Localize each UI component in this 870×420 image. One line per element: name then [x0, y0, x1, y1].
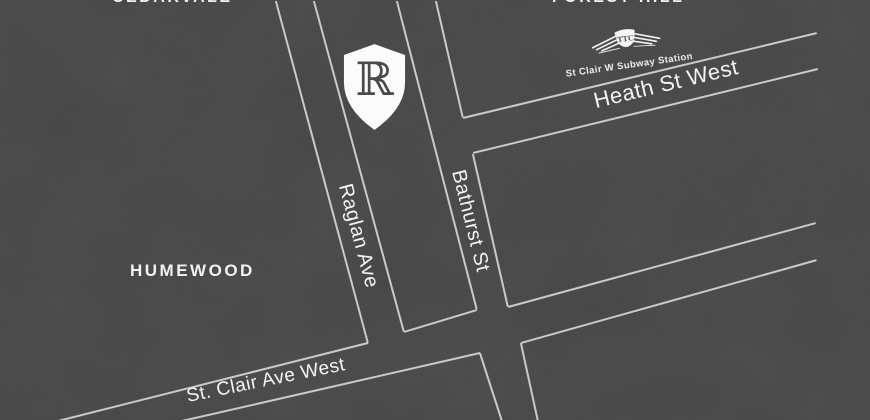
st-clair-north-line-east	[508, 222, 816, 308]
bathurst-st-west-line	[396, 1, 478, 310]
marker-letter: ℝ	[341, 54, 408, 105]
st-clair-south-line-east	[521, 259, 817, 344]
property-marker: ℝ	[341, 43, 408, 132]
bathurst-st-east-line-north	[435, 1, 464, 118]
background-texture	[0, 0, 870, 420]
bathurst-st-west-line-south	[479, 353, 503, 420]
neighborhood-label-cedarvale: CEDARVALE	[112, 0, 233, 7]
neighborhood-label-humewood: HUMEWOOD	[130, 261, 255, 281]
map-canvas: CEDARVALE FOREST HILL HUMEWOOD Raglan Av…	[0, 0, 870, 420]
neighborhood-label-forest-hill: FOREST HILL	[552, 0, 684, 7]
street-label-raglan-ave: Raglan Ave	[333, 181, 383, 290]
st-clair-north-line-mid	[404, 309, 477, 333]
bathurst-st-east-line-south	[520, 343, 539, 420]
